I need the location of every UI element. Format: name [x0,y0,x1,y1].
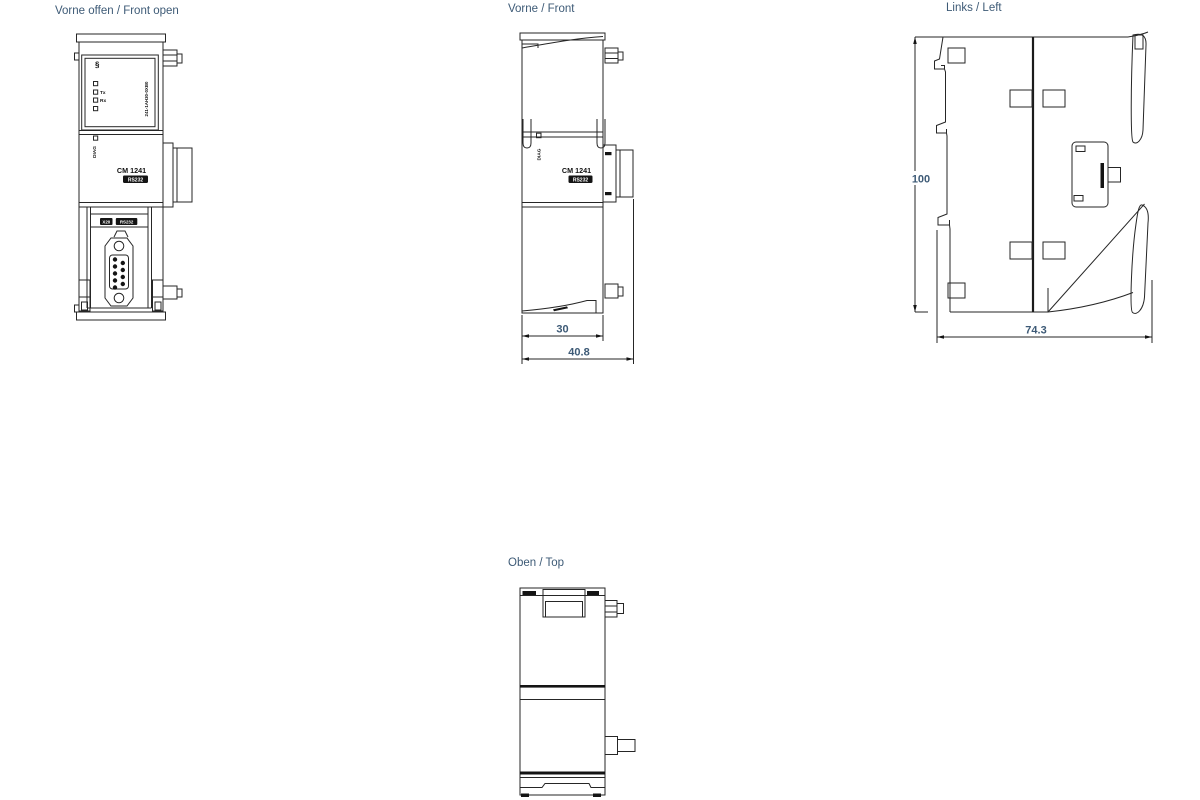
db9-rs232-connector [105,231,133,306]
bus-connector-middle-icon [603,145,633,202]
door-top-curve [522,37,603,49]
side-connector-plate [1072,142,1121,207]
front-seam [520,772,605,775]
top-view [505,555,665,800]
caption-left: Links / Left [946,2,1002,14]
bus-connector-top-icon [605,48,623,63]
led-indicators [94,82,98,111]
door-bottom-curve [522,301,596,314]
top-cap [520,33,605,40]
bus-connector-top-icon [163,50,182,66]
front-open-view: § Tx Rx 241-1AH30-0XB0 DIAG CM 1241 RS23… [60,25,220,325]
bus-connector-middle-icon [163,143,192,207]
door-diagonal [1048,204,1145,312]
led-tx-icon [94,90,98,94]
led-diag-icon [94,136,98,140]
dim-74-3-label: 74.3 [1025,325,1046,337]
housing-seam [520,685,605,688]
left-view: 100 74.3 [895,25,1170,355]
bus-connector-bottom-icon [605,737,635,755]
dim-100-label: 100 [912,174,930,186]
diag-label: DIAG [537,148,543,160]
vent-cutout-bottom [948,283,965,298]
module-body [520,588,605,795]
led-rx-label: Rx [100,98,106,104]
type-badge-label: RS232 [128,177,144,183]
top-cap [77,34,166,42]
front-view: DIAG CM 1241 RS232 30 40.8 [505,25,650,370]
door-step [520,784,605,788]
port-x-label: X20 [102,219,110,224]
led-rx-icon [94,98,98,102]
bus-connector-bottom-icon [163,286,182,299]
led-tx-label: Tx [100,90,106,96]
dimensional-drawing-canvas: Vorne offen / Front open Vorne / Front L… [0,0,1200,800]
led-4-icon [94,107,98,111]
dimension-total-width [522,199,634,364]
module-mark: § [95,61,100,70]
vent-cutout-top [948,48,965,63]
diag-label: DIAG [92,146,98,158]
dim-40-8-label: 40.8 [568,347,589,359]
dim-30-label: 30 [556,324,568,336]
front-door-blade-bottom [1131,205,1148,313]
din-clip-left-icon [79,280,90,311]
clip-left-icon [523,119,531,148]
din-clip-right-icon [153,280,164,311]
port-type-label: RS232 [120,219,134,224]
bottom-cap [77,312,166,320]
module-body [79,42,163,312]
caption-front-open: Vorne offen / Front open [55,5,179,17]
bus-connector-top-icon [605,601,624,618]
led-1-icon [94,82,98,86]
type-badge-label: RS232 [573,177,589,183]
order-number-label: 241-1AH30-0XB0 [144,81,149,116]
model-label: CM 1241 [117,166,146,175]
caption-front: Vorne / Front [508,3,574,15]
din-clip-icon [543,590,585,618]
bus-connector-bottom-icon [605,284,623,298]
clip-right-icon [597,119,605,148]
dimension-body-width [522,315,603,364]
model-label: CM 1241 [562,166,591,175]
front-door-blade-top [1131,34,1146,143]
